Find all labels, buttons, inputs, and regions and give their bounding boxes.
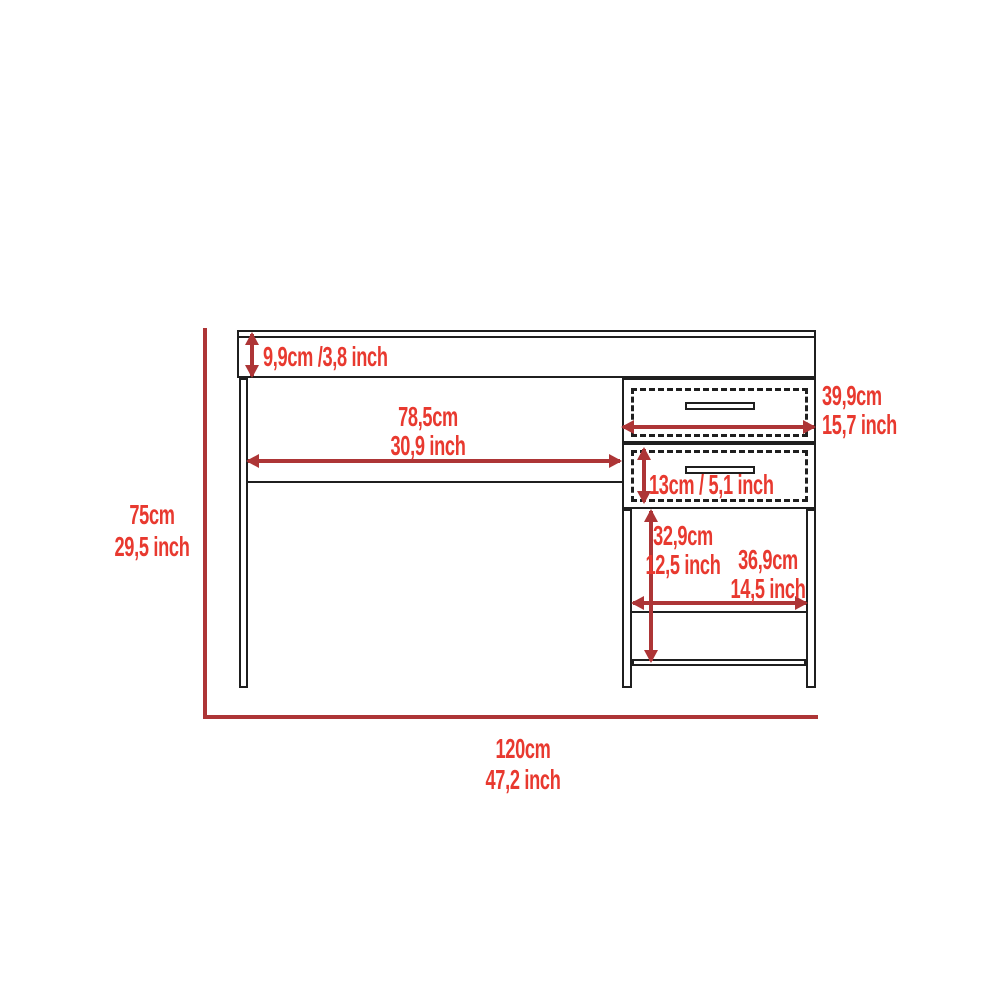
drawer-height-label: 13cm / 5,1 inch [649,470,774,499]
overall-width-label: 120cm 47,2 inch [471,733,575,795]
shelf-width-inch: 14,5 inch [716,574,820,603]
overall-height-cm: 75cm [100,499,204,531]
overall-width-inch: 47,2 inch [471,764,575,795]
desktop-thickness-arrow [250,334,254,376]
cabinet-shelf-line [632,611,806,613]
desk-dimension-diagram: 9,9cm /3,8 inch 78,5cm 30,9 inch 39,9cm … [0,0,1000,1000]
drawer-width-arrow [623,425,814,429]
drawer-width-label: 39,9cm 15,7 inch [822,381,897,439]
drawer-height-arrow [642,449,646,502]
overall-width-extension-line [203,715,818,719]
shelf-width-cm: 36,9cm [716,545,820,574]
cabinet-bottom-shelf [632,659,806,666]
drawer-1 [631,388,808,437]
knee-space-rail [248,481,622,483]
desktop-thickness-label: 9,9cm /3,8 inch [263,342,388,371]
knee-space-width-inch: 30,9 inch [376,431,480,460]
overall-height-inch: 29,5 inch [100,531,204,563]
drawer-divider [624,441,814,445]
drawer-width-cm: 39,9cm [822,381,897,410]
knee-space-width-cm: 78,5cm [376,402,480,431]
overall-width-cm: 120cm [471,733,575,764]
drawer-width-inch: 15,7 inch [822,410,897,439]
overall-height-label: 75cm 29,5 inch [100,499,204,563]
shelf-width-label: 36,9cm 14,5 inch [716,545,820,603]
drawer-1-handle [685,402,755,410]
knee-space-width-label: 78,5cm 30,9 inch [376,402,480,460]
desk-top-edge-line [239,336,814,338]
desk-left-leg [239,378,248,688]
